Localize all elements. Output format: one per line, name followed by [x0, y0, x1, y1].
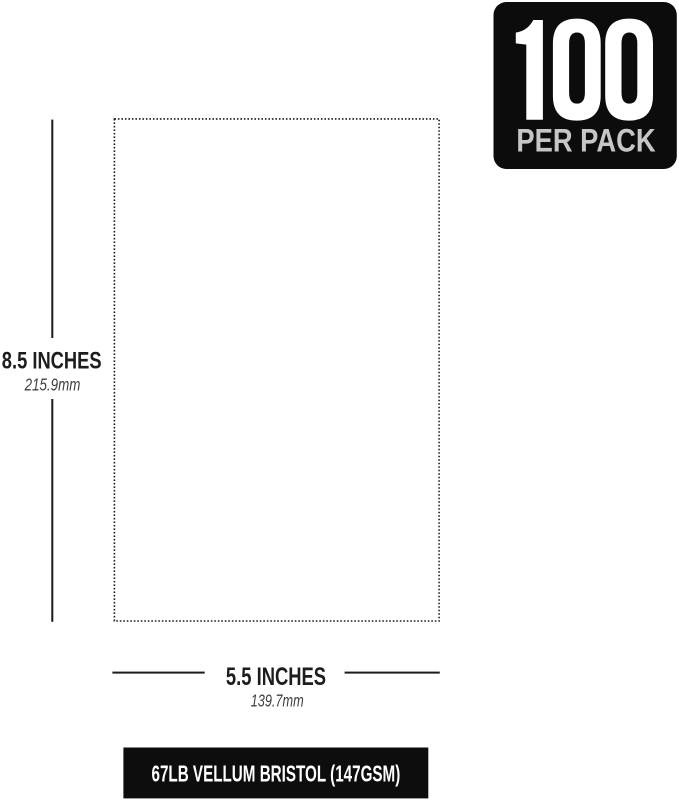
svg-text:PER PACK: PER PACK: [516, 123, 656, 159]
svg-text:139.7mm: 139.7mm: [251, 691, 304, 711]
svg-text:8.5 INCHES: 8.5 INCHES: [2, 348, 102, 375]
svg-text:215.9mm: 215.9mm: [24, 375, 80, 395]
svg-text:67LB VELLUM BRISTOL (147GSM): 67LB VELLUM BRISTOL (147GSM): [152, 761, 401, 787]
svg-text:5.5 INCHES: 5.5 INCHES: [226, 663, 326, 691]
